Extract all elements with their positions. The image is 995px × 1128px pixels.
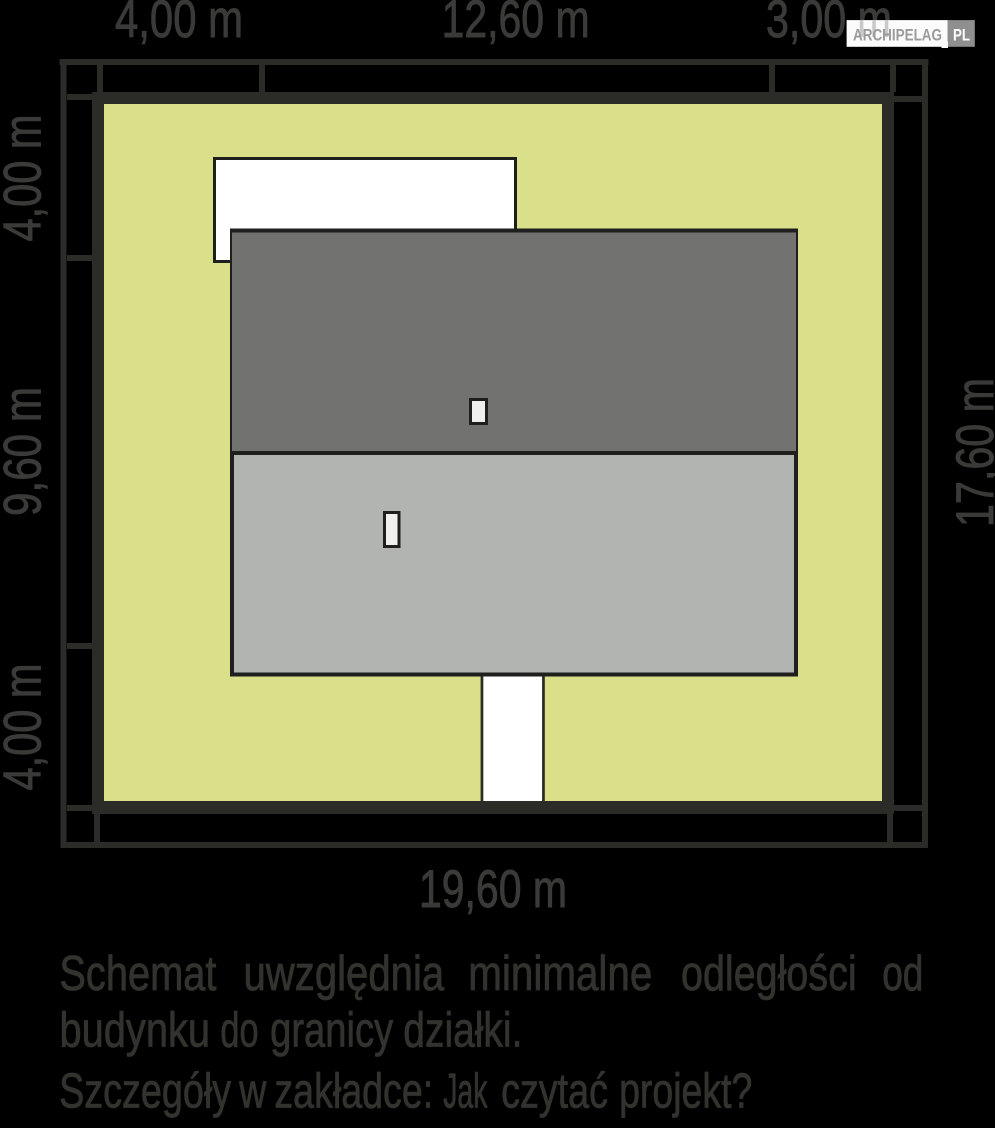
svg-text:12,60 m: 12,60 m	[442, 0, 590, 49]
svg-text:od: od	[882, 946, 923, 1001]
svg-text:4,00 m: 4,00 m	[115, 0, 243, 49]
svg-text:Schemat: Schemat	[59, 946, 216, 1001]
svg-text:zakładce:: zakładce:	[274, 1064, 433, 1119]
svg-text:ARCHIPELAG: ARCHIPELAG	[853, 27, 942, 45]
svg-text:w: w	[238, 1064, 266, 1119]
svg-text:Szczegóły: Szczegóły	[59, 1064, 231, 1119]
svg-text:minimalne: minimalne	[468, 946, 652, 1001]
svg-text:Jak: Jak	[443, 1064, 487, 1119]
svg-text:19,60 m: 19,60 m	[419, 860, 567, 919]
svg-text:4,00 m: 4,00 m	[0, 115, 53, 242]
svg-text:budynku: budynku	[60, 1003, 211, 1058]
svg-text:do: do	[220, 1003, 258, 1058]
svg-text:4,00 m: 4,00 m	[0, 664, 53, 791]
svg-text:uwzględnia: uwzględnia	[244, 946, 445, 1001]
svg-text:odległości: odległości	[681, 946, 857, 1001]
svg-text:17,60 m: 17,60 m	[946, 378, 995, 527]
svg-text:granicy: granicy	[270, 1003, 393, 1058]
svg-text:PL: PL	[953, 27, 970, 45]
svg-text:projekt?: projekt?	[619, 1064, 752, 1119]
svg-text:czytać: czytać	[501, 1064, 608, 1119]
svg-text:9,60 m: 9,60 m	[0, 387, 53, 516]
svg-text:działki.: działki.	[403, 1003, 522, 1058]
